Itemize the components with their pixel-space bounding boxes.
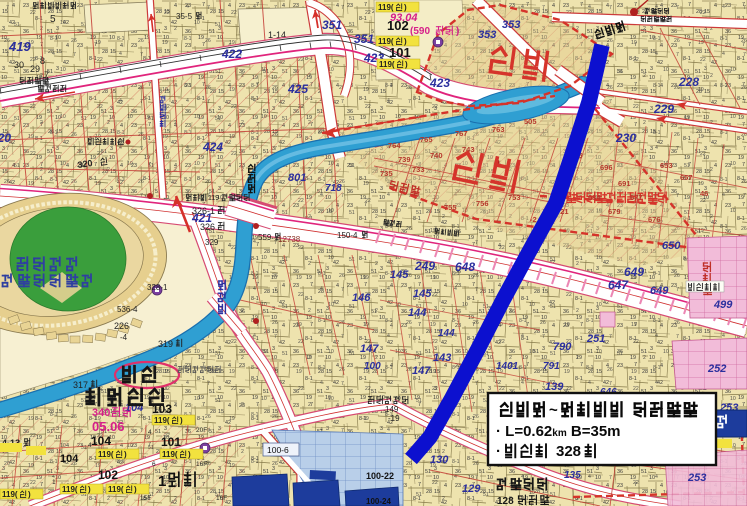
svg-text:144: 144 [408,307,426,319]
svg-text:676: 676 [648,215,661,224]
svg-text:733: 733 [412,165,425,174]
svg-text:229: 229 [653,102,674,116]
svg-text:~: ~ [549,402,558,419]
svg-text:767: 767 [455,129,468,138]
svg-text:102: 102 [98,468,118,482]
svg-text:764: 764 [388,141,401,150]
svg-text:649: 649 [624,265,644,279]
svg-text:-19: -19 [388,414,400,423]
svg-text:559: 559 [258,233,272,242]
svg-text:735: 735 [380,169,393,178]
svg-text:505: 505 [524,117,537,126]
svg-text:16F: 16F [196,461,207,468]
svg-text:119(: 119( [162,450,178,459]
svg-text:128: 128 [497,496,514,506]
svg-text:740: 740 [430,151,443,160]
svg-text:329: 329 [205,238,219,247]
svg-text:763: 763 [492,125,505,134]
svg-text:653: 653 [660,161,673,170]
svg-text:-2: -2 [530,215,537,224]
svg-text:753: 753 [508,193,521,202]
svg-text:684: 684 [588,193,601,202]
svg-text:253: 253 [687,472,706,484]
svg-text:791: 791 [543,361,560,372]
svg-text:249: 249 [414,259,435,273]
svg-text:129: 129 [462,483,481,495]
svg-text:650: 650 [662,240,681,252]
svg-text:144: 144 [438,328,455,339]
svg-text:423: 423 [429,76,450,90]
svg-text:317: 317 [73,380,88,390]
svg-text:1: 1 [52,479,56,486]
svg-text:30: 30 [14,60,24,70]
svg-text:320: 320 [77,158,93,170]
svg-text:419: 419 [8,39,31,54]
svg-text:499: 499 [713,299,733,311]
svg-text:252: 252 [707,363,726,375]
svg-text:): ) [88,485,91,494]
svg-text:4: 4 [148,429,152,436]
svg-text:228: 228 [678,75,699,89]
svg-text:139: 139 [545,381,564,393]
svg-text:647: 647 [608,278,629,292]
svg-text:104: 104 [91,434,111,448]
svg-text:7: 7 [44,70,49,80]
svg-text:4: 4 [88,442,92,449]
svg-text:15F: 15F [140,495,151,502]
svg-text:328-1: 328-1 [147,283,168,292]
svg-text:·: · [496,443,501,460]
svg-text:100: 100 [364,361,381,372]
svg-text:536-4: 536-4 [117,305,138,314]
svg-text:146: 146 [352,292,371,304]
svg-text:755: 755 [444,203,457,212]
svg-text:648: 648 [455,260,475,274]
svg-text:29: 29 [30,64,40,74]
svg-text:230: 230 [615,131,636,145]
svg-text:05.06: 05.06 [92,419,125,434]
svg-text:119(: 119( [98,450,114,459]
svg-text:8: 8 [40,56,45,66]
svg-text:649: 649 [650,285,669,297]
svg-text:20F: 20F [196,427,207,434]
svg-text:150-4: 150-4 [337,231,358,240]
svg-text:790: 790 [553,341,572,353]
svg-text:422: 422 [221,47,242,61]
svg-text:119(: 119( [379,60,395,69]
svg-text:16F: 16F [216,495,227,502]
svg-text:424: 424 [202,140,223,154]
svg-text:691: 691 [618,179,631,188]
svg-text:739: 739 [398,155,411,164]
svg-text:100-6: 100-6 [267,445,289,455]
svg-text:353: 353 [502,19,520,31]
svg-text:149: 149 [385,405,399,414]
svg-text:425: 425 [287,82,308,96]
svg-text:1: 1 [158,473,166,490]
svg-text:657: 657 [680,173,693,182]
svg-text:319: 319 [158,339,173,349]
svg-text:420: 420 [0,131,11,145]
svg-text:100-22: 100-22 [366,471,394,481]
svg-text:756: 756 [476,199,489,208]
svg-text:): ) [188,450,191,459]
svg-text:5: 5 [50,14,56,25]
svg-text:101: 101 [389,45,411,60]
svg-text:143: 143 [433,352,451,364]
svg-text:351: 351 [322,18,342,32]
svg-text:119(: 119( [154,416,170,425]
svg-text:): ) [404,3,407,12]
svg-text:): ) [456,26,459,37]
svg-text:147: 147 [360,343,379,355]
svg-text:743: 743 [462,145,475,154]
svg-text:145: 145 [413,288,432,300]
svg-text:135: 135 [564,470,581,481]
svg-text:101: 101 [161,435,181,449]
svg-text:696: 696 [600,163,613,172]
svg-text:): ) [405,60,408,69]
svg-text:): ) [134,485,137,494]
svg-text:226: 226 [114,321,129,331]
svg-text:-4: -4 [120,333,128,342]
svg-text:12738: 12738 [278,235,301,244]
svg-text:801: 801 [288,172,306,184]
svg-text:340: 340 [92,407,110,419]
svg-text:326: 326 [200,222,215,232]
svg-text:119(: 119( [62,485,78,494]
svg-text:119(: 119( [108,485,124,494]
svg-text:677: 677 [630,193,643,202]
svg-text:): ) [124,450,127,459]
svg-text:1401: 1401 [496,361,519,372]
svg-text:): ) [180,416,183,425]
svg-text:35-5: 35-5 [176,12,193,21]
svg-text:351: 351 [354,32,374,46]
svg-text:102: 102 [387,18,409,33]
svg-text:353: 353 [478,29,496,41]
svg-text:119(: 119( [378,3,394,12]
svg-text:326-1: 326-1 [192,206,215,216]
svg-text:328: 328 [556,443,581,460]
svg-text:130: 130 [430,454,449,466]
svg-text:718: 718 [325,183,342,194]
svg-text:(590: (590 [410,26,430,37]
svg-text:679: 679 [608,207,621,216]
svg-text:46: 46 [700,189,708,198]
svg-text:104: 104 [60,453,79,465]
svg-text:100-24: 100-24 [366,497,391,506]
svg-text:145: 145 [390,269,409,281]
svg-text:765: 765 [420,135,433,144]
svg-text:): ) [28,490,31,499]
svg-text:6: 6 [152,461,156,468]
svg-text:119(: 119( [2,490,18,499]
svg-text:147: 147 [412,365,431,377]
svg-text:251: 251 [586,333,605,345]
svg-text:119: 119 [208,195,219,202]
